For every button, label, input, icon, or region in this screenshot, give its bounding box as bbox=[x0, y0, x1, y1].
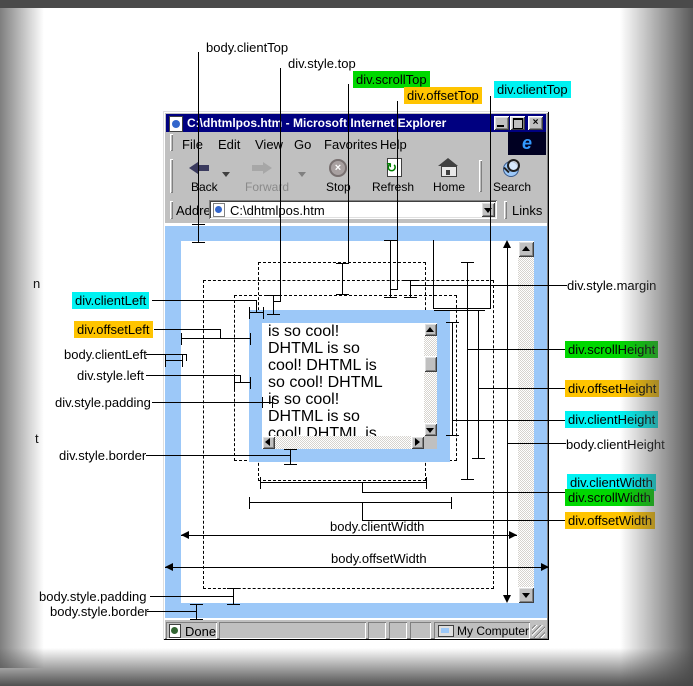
beam-div-scrollTop bbox=[336, 263, 349, 295]
label-div-offsetWidth: div.offsetWidth bbox=[565, 512, 655, 529]
stop-icon[interactable]: × bbox=[329, 159, 347, 177]
window-scroll-down-button[interactable] bbox=[518, 587, 534, 603]
done-page-icon bbox=[169, 624, 181, 638]
status-zone-pane: My Computer bbox=[434, 622, 530, 639]
toolbar-separator bbox=[479, 160, 482, 192]
document-globe-icon bbox=[169, 116, 183, 132]
window-title: C:\dhtmlpos.htm - Microsoft Internet Exp… bbox=[187, 114, 446, 132]
arrow-body-clientWidth-right bbox=[509, 531, 517, 539]
label-div-style-top: div.style.top bbox=[288, 56, 356, 71]
arrow-body-clientHeight-top bbox=[503, 240, 511, 248]
label-body-style-border: body.style.border bbox=[50, 604, 149, 619]
line-body-clientWidth bbox=[181, 535, 517, 536]
beam-div-offsetHeight bbox=[472, 310, 485, 459]
line-body-clientLeft bbox=[186, 354, 187, 361]
home-label[interactable]: Home bbox=[433, 180, 465, 194]
shadow-bottom bbox=[0, 648, 693, 686]
div-text[interactable]: is so cool! DHTML is so cool! DHTML is s… bbox=[262, 323, 424, 436]
label-div-style-left: div.style.left bbox=[77, 368, 144, 383]
line-div-offsetLeft bbox=[154, 329, 220, 330]
status-pane-small-1 bbox=[368, 622, 386, 639]
menu-go[interactable]: Go bbox=[294, 137, 311, 152]
arrow-body-clientWidth-left bbox=[181, 531, 189, 539]
beam-body-style-border bbox=[190, 604, 203, 620]
line-div-style-left bbox=[146, 375, 240, 376]
label-div-offsetHeight: div.offsetHeight bbox=[565, 380, 659, 397]
search-label[interactable]: Search bbox=[493, 180, 531, 194]
beam-body-clientLeft bbox=[165, 355, 183, 367]
address-gripper[interactable] bbox=[170, 201, 173, 219]
beam-div-offsetTop bbox=[384, 240, 397, 298]
my-computer-icon bbox=[438, 625, 454, 637]
line-div-scrollTop bbox=[348, 84, 349, 263]
search-icon[interactable] bbox=[502, 158, 520, 176]
status-done-text: Done bbox=[185, 624, 216, 639]
line-div-style-border bbox=[146, 455, 290, 456]
line-div-clientTop bbox=[490, 96, 491, 309]
beam-div-style-top bbox=[267, 295, 280, 315]
label-body-offsetWidth: body.offsetWidth bbox=[331, 551, 427, 566]
label-body-clientLeft: body.clientLeft bbox=[64, 347, 147, 362]
menu-favorites[interactable]: Favorites bbox=[324, 137, 377, 152]
menu-help[interactable]: Help bbox=[380, 137, 407, 152]
beam-div-clientWidth bbox=[260, 477, 427, 489]
label-div-offsetTop: div.offsetTop bbox=[404, 87, 482, 104]
window-scrollbar-track[interactable] bbox=[518, 257, 534, 587]
line-div-clientWidth bbox=[362, 483, 363, 492]
label-div-clientLeft: div.clientLeft bbox=[72, 292, 149, 309]
close-button[interactable]: × bbox=[528, 116, 543, 130]
beam-div-style-margin bbox=[404, 280, 417, 298]
label-div-offsetLeft: div.offsetLeft bbox=[74, 321, 153, 338]
links-gripper[interactable] bbox=[504, 201, 507, 219]
label-fragment-t: t bbox=[35, 431, 39, 446]
toolbar-gripper[interactable] bbox=[170, 159, 173, 193]
line-div-offsetHeight bbox=[478, 388, 566, 389]
line-div-clientTop bbox=[433, 240, 434, 309]
line-div-offsetTop bbox=[397, 101, 398, 290]
line-body-clientTop bbox=[198, 52, 199, 225]
label-body-style-padding: body.style.padding bbox=[39, 589, 146, 604]
refresh-label[interactable]: Refresh bbox=[372, 180, 414, 194]
div-scroll-down-button[interactable] bbox=[424, 423, 437, 436]
forward-label[interactable]: Forward bbox=[245, 180, 289, 194]
div-scroll-left-button[interactable] bbox=[262, 436, 275, 449]
label-div-style-padding: div.style.padding bbox=[55, 395, 151, 410]
cap-div-style-padding bbox=[272, 397, 273, 408]
line-div-offsetWidth bbox=[362, 503, 363, 520]
refresh-icon[interactable]: ↻ bbox=[387, 158, 402, 177]
address-page-icon bbox=[213, 203, 225, 217]
line-div-style-padding bbox=[152, 402, 272, 403]
arrow-body-clientHeight-bottom bbox=[503, 595, 511, 603]
resize-grip[interactable] bbox=[532, 625, 545, 638]
line-div-clientLeft bbox=[152, 300, 256, 301]
address-field[interactable]: C:\dhtmlpos.htm bbox=[209, 200, 497, 219]
beam-div-offsetLeft bbox=[181, 333, 251, 345]
beam-body-style-padding bbox=[227, 588, 240, 605]
label-div-scrollHeight: div.scrollHeight bbox=[565, 341, 658, 358]
label-div-scrollTop: div.scrollTop bbox=[353, 71, 430, 88]
label-fragment-n: n bbox=[33, 276, 40, 291]
back-label[interactable]: Back bbox=[191, 180, 218, 194]
line-div-clientWidth bbox=[362, 492, 566, 493]
stop-label[interactable]: Stop bbox=[326, 180, 351, 194]
label-div-scrollWidth: div.scrollWidth bbox=[565, 489, 654, 506]
ie-logo: e bbox=[508, 132, 546, 155]
status-zone-text: My Computer bbox=[457, 624, 529, 638]
menu-gripper[interactable] bbox=[170, 134, 173, 151]
status-progress-pane bbox=[219, 622, 366, 639]
menu-file[interactable]: File bbox=[182, 137, 203, 152]
label-div-clientTop: div.clientTop bbox=[494, 81, 571, 98]
div-scroll-up-button[interactable] bbox=[424, 323, 437, 336]
beam-body-clientTop bbox=[192, 224, 205, 243]
line-div-style-top bbox=[280, 68, 281, 302]
label-div-style-margin: div.style.margin bbox=[567, 278, 656, 293]
home-icon[interactable] bbox=[438, 158, 458, 175]
line-div-style-margin bbox=[410, 285, 567, 286]
maximize-button[interactable] bbox=[510, 116, 525, 130]
beam-div-style-border bbox=[284, 449, 297, 465]
div-vscrollbar-thumb[interactable] bbox=[424, 356, 437, 372]
shadow-top bbox=[0, 0, 693, 8]
address-value[interactable]: C:\dhtmlpos.htm bbox=[230, 203, 325, 218]
cap-div-style-padding bbox=[262, 397, 263, 408]
line-body-style-border bbox=[147, 611, 196, 612]
label-div-style-border: div.style.border bbox=[59, 448, 146, 463]
menu-edit[interactable]: Edit bbox=[218, 137, 240, 152]
line-body-clientHeight bbox=[507, 443, 566, 444]
status-pane-small-3 bbox=[410, 622, 431, 639]
beam-div-offsetWidth bbox=[249, 497, 452, 509]
line-body-clientHeight bbox=[507, 243, 508, 600]
beam-div-clientHeight bbox=[446, 322, 459, 436]
arrow-body-offsetWidth-right bbox=[541, 563, 549, 571]
status-pane-small-2 bbox=[389, 622, 407, 639]
div-scroll-right-button[interactable] bbox=[411, 436, 424, 449]
beam-div-style-left bbox=[234, 377, 251, 389]
line-body-style-padding bbox=[150, 596, 233, 597]
title-bar[interactable]: C:\dhtmlpos.htm - Microsoft Internet Exp… bbox=[166, 114, 546, 132]
div-scrollbar-corner bbox=[424, 436, 437, 449]
back-icon[interactable] bbox=[189, 162, 211, 175]
minimize-button[interactable] bbox=[494, 116, 509, 130]
beam-div-clientLeft bbox=[249, 307, 264, 319]
dhtml-positioning-diagram: C:\dhtmlpos.htm - Microsoft Internet Exp… bbox=[0, 0, 693, 686]
label-div-clientHeight: div.clientHeight bbox=[565, 411, 658, 428]
div-vscrollbar-track[interactable] bbox=[424, 336, 437, 423]
line-body-offsetWidth bbox=[165, 567, 549, 568]
forward-dropdown-icon[interactable] bbox=[298, 172, 306, 177]
div-hscrollbar-track[interactable] bbox=[275, 436, 411, 449]
address-dropdown-button[interactable] bbox=[481, 202, 495, 217]
forward-icon[interactable] bbox=[252, 162, 274, 175]
label-body-clientWidth: body.clientWidth bbox=[330, 519, 424, 534]
menu-view[interactable]: View bbox=[255, 137, 283, 152]
status-done-pane: Done bbox=[166, 622, 217, 639]
window-scroll-up-button[interactable] bbox=[518, 241, 534, 257]
label-body-clientTop: body.clientTop bbox=[206, 40, 288, 55]
arrow-body-offsetWidth-left bbox=[165, 563, 173, 571]
links-label[interactable]: Links bbox=[512, 203, 542, 218]
shadow-left bbox=[0, 8, 44, 668]
label-body-clientHeight: body.clientHeight bbox=[566, 437, 665, 452]
back-dropdown-icon[interactable] bbox=[222, 172, 230, 177]
